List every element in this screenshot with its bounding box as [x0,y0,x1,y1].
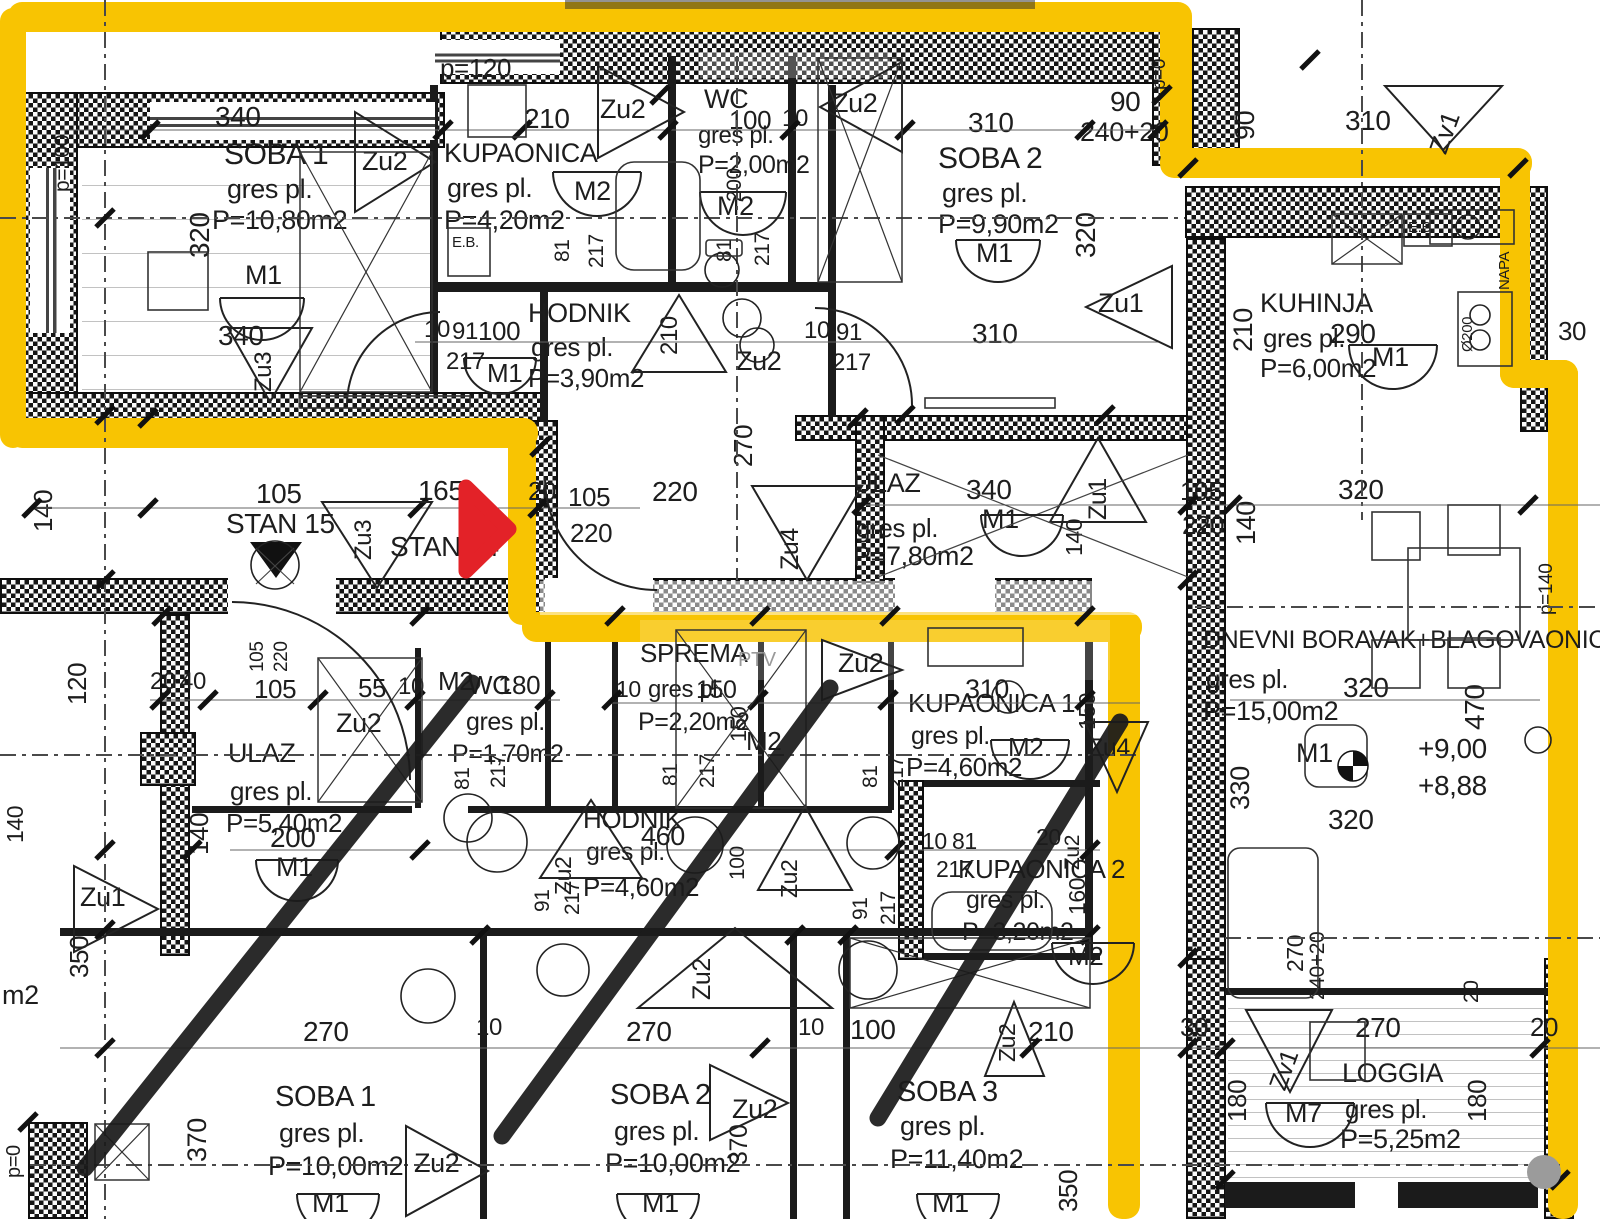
dimension-label: 217 [752,232,773,266]
dimension-tick [96,1039,114,1057]
window-symbol [30,168,70,333]
dimension-label: 30 [1558,318,1586,344]
dimension-label: 210 [658,316,682,355]
door-mark-label: M1 [1372,344,1409,371]
dimension-label: 240+20 [1080,119,1168,146]
dimension-label: 140 [1233,501,1260,545]
door-mark-label: M7 [1285,1100,1322,1127]
dimension-label: 220 [272,641,291,672]
dimension-label: 81 [660,763,681,786]
partition-wall [843,935,850,1219]
window-symbol [150,102,435,140]
door-mark-label: Zu4 [778,528,803,570]
dimension-label: 270 [1355,1014,1401,1042]
dimension-tick [1519,496,1537,514]
dimension-label: 40 [180,670,206,694]
door-mark-triangle [752,486,862,580]
dimension-label: 81 [552,239,573,262]
dimension-label: 105 [248,641,267,672]
door-mark-label: M1 [312,1190,349,1217]
furniture-outline [1448,505,1500,555]
wall-segment [140,732,196,786]
wall-segment [1192,28,1240,168]
dimension-label: 217 [878,891,899,925]
room-label: KUPAONICA [444,140,597,167]
furniture-outline [468,85,526,137]
level-target-symbol [1338,751,1368,781]
dimension-label: 180 [498,672,540,698]
dimension-label: 180 [1464,1080,1490,1122]
dimension-label: 350 [66,936,92,978]
dimension-label: 120 [64,663,90,705]
apartment-boundary-highlight [8,418,538,448]
level-label: +9,00 [1418,735,1487,763]
door-mark-label: M2 [1008,734,1043,760]
door-mark-label: Zu2 [736,348,781,375]
dimension-label: 340 [218,322,264,350]
door-mark-label: M1 [276,854,313,881]
partition-wall [545,614,551,810]
dimension-label: 330 [1227,766,1254,810]
level-label: +8,88 [1418,772,1487,800]
dimension-label: p=140 [1537,564,1556,615]
door-mark-label: Zu2 [600,96,645,123]
room-label: gres pl. [698,124,774,148]
dimension-label: 270 [303,1018,349,1046]
wall-segment [28,1122,88,1219]
dimension-label: 105 [1180,478,1222,504]
wall-segment [1186,958,1226,1219]
dimension-tick [651,86,669,104]
furniture-outline [1228,848,1318,998]
dimension-tick [411,841,429,859]
dimension-label: 91 [836,321,862,345]
room-label: P=10,80m2 [212,207,347,234]
door-mark-label: M1 [245,262,282,289]
room-label: gres pl. [227,176,312,203]
dimension-label: 240+20 [1307,932,1328,1000]
door-mark-label: Zu2 [778,860,801,898]
fixture-circle [847,817,899,869]
dimension-label: 100 [850,1016,896,1044]
dimension-tick [751,1039,769,1057]
room-label: P=7,80m2 [853,543,974,570]
dimension-label: 340 [215,103,261,131]
note-label: E.B. [1408,220,1435,235]
dimension-tick [139,499,157,517]
wall-segment [1186,238,1226,960]
fixture-circle [467,812,527,872]
room-label: P=10,00m2 [268,1153,403,1180]
room-label: gres pl. [230,778,312,804]
dimension-label: 220 [652,478,698,506]
door-opening [228,578,336,614]
door-mark-label: Zu1 [1086,478,1111,520]
dimension-label: 200 [270,824,316,852]
shaft-box-diagonal [850,938,1090,1008]
level-target-quarter [1338,766,1353,781]
fixture-circle [401,969,455,1023]
room-label: gres pl. [942,180,1027,207]
dimension-label: 10 [922,830,947,853]
door-mark-label: Zu3 [352,520,376,560]
dimension-label: 217 [488,754,509,788]
dimension-label: 210 [1028,1018,1074,1046]
dimension-label: 217 [886,756,907,790]
dimension-label: 150 [696,678,737,703]
room-label: gres pl. [900,1113,985,1140]
partition-wall [790,935,797,1219]
room-label: gres pl. [911,724,990,749]
dimension-label: 100 [727,846,748,880]
room-label: LOGGIA [1342,1060,1443,1087]
partition-wall [612,614,618,810]
dimension-label: 10 [398,675,424,699]
door-mark-triangle [758,806,852,890]
door-mark-label: M1 [982,506,1019,533]
fixture-circle [723,299,761,337]
partition-wall [436,282,836,292]
room-label: P=3,20m2 [962,920,1073,945]
shaft-box [850,938,1090,1008]
room-label: P=15,00m2 [1203,698,1338,725]
room-label: SOBA 2 [610,1081,711,1110]
dimension-label: 105 [254,676,296,702]
door-mark-label: Zu2 [838,650,883,677]
room-label: KUPAONICA 1 [908,690,1075,716]
room-label: gres pl. [279,1120,364,1147]
door-mark-label: Zu2 [732,1096,777,1123]
dimension-label: 217 [697,754,718,788]
dimension-label: 140 [4,806,27,843]
room-label: gres pl. [531,334,613,360]
dimension-label: 10 [798,1016,824,1040]
dimension-label: 310 [968,109,1014,137]
dimension-label: 320 [186,212,214,258]
room-label: P=4,60m2 [906,754,1022,780]
room-label: P=2,00m2 [698,153,809,178]
dimension-label: 10 [616,678,641,701]
room-label: P=4,60m2 [583,874,699,900]
dimension-label: 90 [1232,111,1259,140]
dimension-label: 91 [850,897,871,920]
partition-wall [1398,1182,1538,1208]
dimension-label: 320 [1343,674,1389,702]
door-mark-triangle [638,928,832,1008]
level-target-quarter [1353,751,1368,766]
room-label: P=6,00m2 [1260,355,1376,381]
survey-marker [250,542,302,578]
room-label: SPREMA [640,640,747,666]
door-mark-label: M1 [932,1190,969,1217]
dimension-tick [96,841,114,859]
room-label: gres pl. [856,515,938,541]
dimension-label: 140 [1063,519,1086,556]
floor-plan-canvas: 340SOBA 1gres pl.P=10,80m2320M1Zu2340Zu3… [0,0,1600,1219]
door-mark-label: M2 [574,178,611,205]
room-label: P=3,90m2 [528,365,644,391]
shaft-box-diagonal [95,1124,149,1180]
dimension-label: 270 [626,1018,672,1046]
dimension-label: 140 [186,813,212,855]
apartment-boundary-highlight [1548,360,1578,1219]
dimension-label: 210 [524,105,570,133]
note-label: PTV [738,650,776,670]
dimension-label: 320 [1072,212,1100,258]
door-mark-label: M1 [487,360,522,386]
room-label: P=9,90m2 [938,211,1059,238]
dimension-label: 370 [727,1124,752,1165]
apartment-boundary-highlight [1160,148,1532,178]
dimension-tick [896,121,914,139]
room-label: KUHINJA [1260,290,1373,317]
apartment-boundary-highlight [1108,612,1140,1219]
shaft-box-diagonal [850,938,1090,1008]
dimension-label: 340 [966,476,1012,504]
dimension-label: 320 [1338,476,1384,504]
dimension-label: 310 [972,320,1018,348]
room-label: gres pl. [966,888,1045,913]
dimension-label: 320 [1328,806,1374,834]
door-mark-label: Zu3 [252,352,276,392]
door-mark-label: M2 [717,193,754,220]
door-mark-label: Zu2 [414,1150,459,1177]
door-mark-label: Zu4 [1088,736,1130,761]
dimension-label: 310 [1345,107,1391,135]
room-label: SOBA 1 [224,140,328,170]
dimension-label: p=0 [4,1145,24,1178]
play-marker-icon[interactable] [466,487,509,571]
door-mark-label: Zu2 [996,1024,1019,1062]
room-label: SOBA 2 [938,144,1042,174]
furniture-outline [616,162,700,270]
note-label: Ø200 [1460,317,1475,352]
room-label: P=10,00m2 [605,1150,740,1177]
dimension-label: 370 [184,1118,211,1162]
room-label: P=5,25m2 [1340,1126,1461,1153]
dimension-label: 90 [1110,88,1140,116]
dimension-label: 10 [476,1016,502,1040]
room-label: DNEVNI BORAVAK+BLAGOVAONICA [1203,628,1600,653]
dimension-tick [309,691,327,709]
dimension-label: 30 [1180,1014,1208,1040]
dimension-label: 210 [1230,308,1257,352]
dimension-label: 105 [256,480,302,508]
dimension-label: p=0 [1150,59,1169,90]
dimension-label: 217 [832,351,871,375]
shaft-box [95,1124,149,1180]
dimension-label: 81 [714,239,735,262]
dimension-label: 100 [478,318,520,344]
room-label: HODNIK [528,300,631,327]
partition-wall [1225,1182,1355,1208]
note-label: E.B. [452,235,479,250]
dimension-label: 20 [528,478,556,504]
dimension-label: p=120 [440,55,511,81]
dimension-label: 220 [570,520,612,546]
dimension-label: 217 [446,350,485,374]
dimension-label: 10 [804,319,830,343]
shaft-box-diagonal [95,1124,149,1180]
furniture-outline [925,398,1055,408]
dimension-label: 150 [1076,693,1099,730]
watermark [565,0,1035,9]
door-mark-label: M1 [976,240,1013,267]
apartment-boundary-highlight [0,8,26,448]
door-mark-label: Zu2 [362,148,407,175]
note-label: NAPA [1497,252,1512,290]
room-label: gres pl. [586,840,665,865]
watermark [540,581,1140,615]
furniture-outline [1372,512,1420,560]
room-label: gres pl. [1206,666,1288,692]
dimension-label: 165 [418,477,464,505]
dimension-label: 91 [452,320,478,344]
door-mark-label: M2 [1068,943,1103,969]
fixture-circle [537,944,589,996]
partition-wall [1225,988,1555,995]
dimension-label: 270 [1284,935,1307,972]
dimension-label: 180 [1224,1080,1250,1122]
dimension-label: 350 [1055,1170,1081,1212]
dimension-label: 20 [150,670,176,694]
door-mark-label: Zu1 [1098,290,1143,317]
dimension-label: 81 [452,767,473,790]
door-mark-label: Zu2 [690,958,715,1000]
room-label: P=11,40m2 [890,1146,1023,1173]
door-mark-label: M1 [642,1190,679,1217]
dimension-label: 10 [424,318,450,342]
apartment-label: STAN 15 [226,510,335,538]
room-label: gres pl. [447,175,532,202]
dimension-label: m2 [2,982,39,1009]
room-label: SOBA 3 [897,1078,998,1107]
door-mark-label: Zu1 [80,884,125,911]
partition-wall [480,935,487,1219]
room-label: P=4,20m2 [444,207,565,234]
room-label: KUPAONICA 2 [958,856,1125,882]
dimension-label: 10 [782,107,808,131]
dimension-label: 217 [586,234,607,268]
room-label: gres pl. [466,710,545,735]
door-mark-label: Zu2 [552,857,575,895]
dimension-label: 140 [30,490,56,532]
dimension-label: 20 [1036,826,1061,849]
dimension-label: 20 [1530,1014,1558,1040]
partition-wall [60,928,1090,936]
dimension-label: 470 [1461,684,1489,730]
door-mark-label: M2 [746,728,781,754]
dimension-tick [1301,51,1319,69]
watermark [700,52,890,78]
dimension-label: 105 [568,484,610,510]
door-mark-label: Zu2 [832,90,877,117]
room-label: ULAZ [228,740,295,767]
partition-wall [668,56,676,286]
partition-wall [415,648,421,808]
room-label: gres pl. [1345,1096,1427,1122]
room-label: ULAZ [853,470,920,497]
room-label: gres pl. [614,1118,699,1145]
dimension-label: 20 [1461,980,1482,1003]
dimension-label: 290 [1330,320,1376,348]
dimension-label: p=100 [52,135,73,192]
fixture-circle [444,794,492,842]
dimension-label: 270 [730,425,756,467]
dimension-label: 220 [1182,512,1224,538]
room-label: SOBA 1 [275,1083,376,1112]
dimension-label: 55 [358,675,386,701]
wall-segment [1185,186,1530,238]
dimension-label: 81 [952,830,977,853]
door-mark-label: Zu2 [336,710,381,737]
dimension-label: 81 [860,765,881,788]
door-mark-label: M1 [1296,740,1333,767]
